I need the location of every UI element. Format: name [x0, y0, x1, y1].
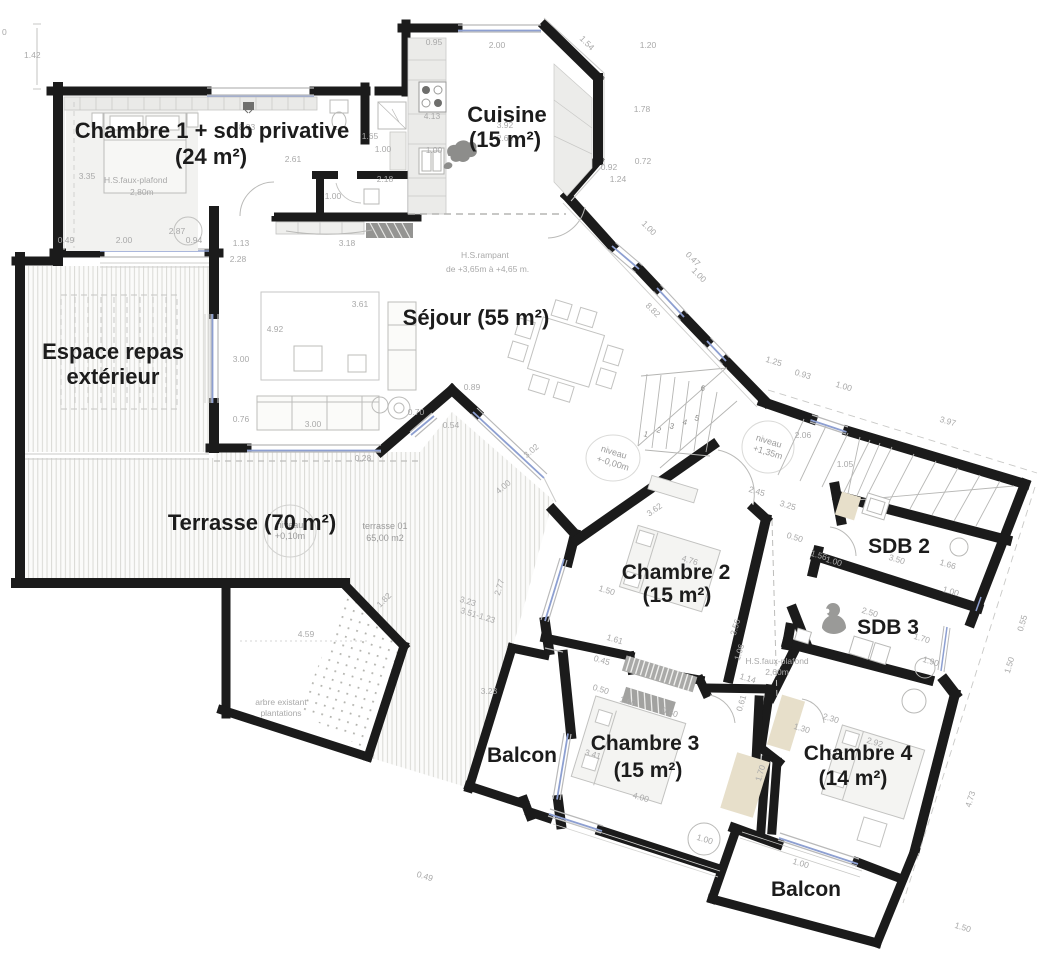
svg-text:0.70: 0.70: [408, 407, 425, 417]
svg-text:H.S.rampant: H.S.rampant: [461, 250, 509, 260]
svg-text:65,00 m2: 65,00 m2: [366, 533, 404, 543]
svg-text:Chambre 2: Chambre 2: [622, 561, 731, 584]
svg-text:1.00: 1.00: [325, 191, 342, 201]
svg-text:3.18: 3.18: [339, 238, 356, 248]
svg-text:0.94: 0.94: [186, 235, 203, 245]
svg-text:2.00: 2.00: [116, 235, 133, 245]
svg-text:0.92: 0.92: [601, 162, 618, 172]
svg-text:(14 m²): (14 m²): [819, 767, 888, 790]
svg-text:2.06: 2.06: [795, 430, 812, 440]
svg-text:3.61: 3.61: [352, 299, 369, 309]
svg-text:0.89: 0.89: [464, 382, 481, 392]
svg-text:0.28: 0.28: [355, 453, 372, 463]
svg-text:SDB 2: SDB 2: [868, 535, 930, 558]
svg-text:3.00: 3.00: [233, 354, 250, 364]
svg-text:Chambre 3: Chambre 3: [591, 732, 700, 755]
svg-text:2,60m: 2,60m: [765, 667, 789, 677]
svg-text:4.13: 4.13: [424, 111, 441, 121]
svg-text:0.49: 0.49: [58, 235, 75, 245]
svg-text:(24 m²): (24 m²): [175, 144, 247, 169]
svg-text:Séjour (55 m²): Séjour (55 m²): [403, 305, 550, 330]
svg-text:H.S.faux-plafond: H.S.faux-plafond: [104, 175, 168, 185]
svg-text:H.S.faux-plafond: H.S.faux-plafond: [745, 656, 809, 666]
svg-text:1.13: 1.13: [233, 238, 250, 248]
svg-text:2.28: 2.28: [230, 254, 247, 264]
svg-text:arbre existant: arbre existant: [255, 697, 307, 707]
svg-text:1.24: 1.24: [610, 174, 627, 184]
svg-text:1.05: 1.05: [837, 459, 854, 469]
svg-text:0.72: 0.72: [635, 156, 652, 166]
svg-text:1.42: 1.42: [24, 50, 41, 60]
svg-text:0: 0: [2, 27, 7, 37]
svg-text:Chambre 1 + sdb privative: Chambre 1 + sdb privative: [75, 118, 350, 143]
svg-text:0.76: 0.76: [233, 414, 250, 424]
svg-text:2.00: 2.00: [489, 40, 506, 50]
svg-text:1.78: 1.78: [634, 104, 651, 114]
svg-text:SDB 3: SDB 3: [857, 616, 919, 639]
svg-text:1.00: 1.00: [426, 145, 443, 155]
svg-text:2.18: 2.18: [377, 174, 394, 184]
svg-text:Balcon: Balcon: [487, 744, 557, 767]
svg-text:Cuisine: Cuisine: [467, 102, 546, 127]
svg-text:1.65: 1.65: [362, 131, 379, 141]
svg-text:1.00: 1.00: [375, 144, 392, 154]
svg-text:0.95: 0.95: [426, 37, 443, 47]
svg-text:plantations: plantations: [260, 708, 301, 718]
svg-text:Chambre 4: Chambre 4: [804, 742, 913, 765]
svg-text:(15 m²): (15 m²): [469, 127, 541, 152]
svg-text:1.20: 1.20: [640, 40, 657, 50]
svg-text:3.23: 3.23: [481, 686, 498, 696]
svg-text:4.92: 4.92: [267, 324, 284, 334]
svg-text:Espace repas: Espace repas: [42, 339, 184, 364]
svg-text:3.00: 3.00: [305, 419, 322, 429]
svg-text:(15 m²): (15 m²): [614, 759, 683, 782]
svg-text:terrasse 01: terrasse 01: [362, 521, 407, 531]
svg-text:(15 m²): (15 m²): [643, 584, 712, 607]
svg-text:2,80m: 2,80m: [130, 187, 154, 197]
svg-text:Balcon: Balcon: [771, 878, 841, 901]
svg-text:0.54: 0.54: [443, 420, 460, 430]
svg-text:3.35: 3.35: [79, 171, 96, 181]
svg-text:extérieur: extérieur: [67, 364, 160, 389]
svg-text:de +3,65m à +4,65 m.: de +3,65m à +4,65 m.: [446, 264, 529, 274]
svg-text:Terrasse (70 m²): Terrasse (70 m²): [168, 510, 336, 535]
svg-text:4.59: 4.59: [298, 629, 315, 639]
svg-text:2.61: 2.61: [285, 154, 302, 164]
svg-text:2.87: 2.87: [169, 226, 186, 236]
